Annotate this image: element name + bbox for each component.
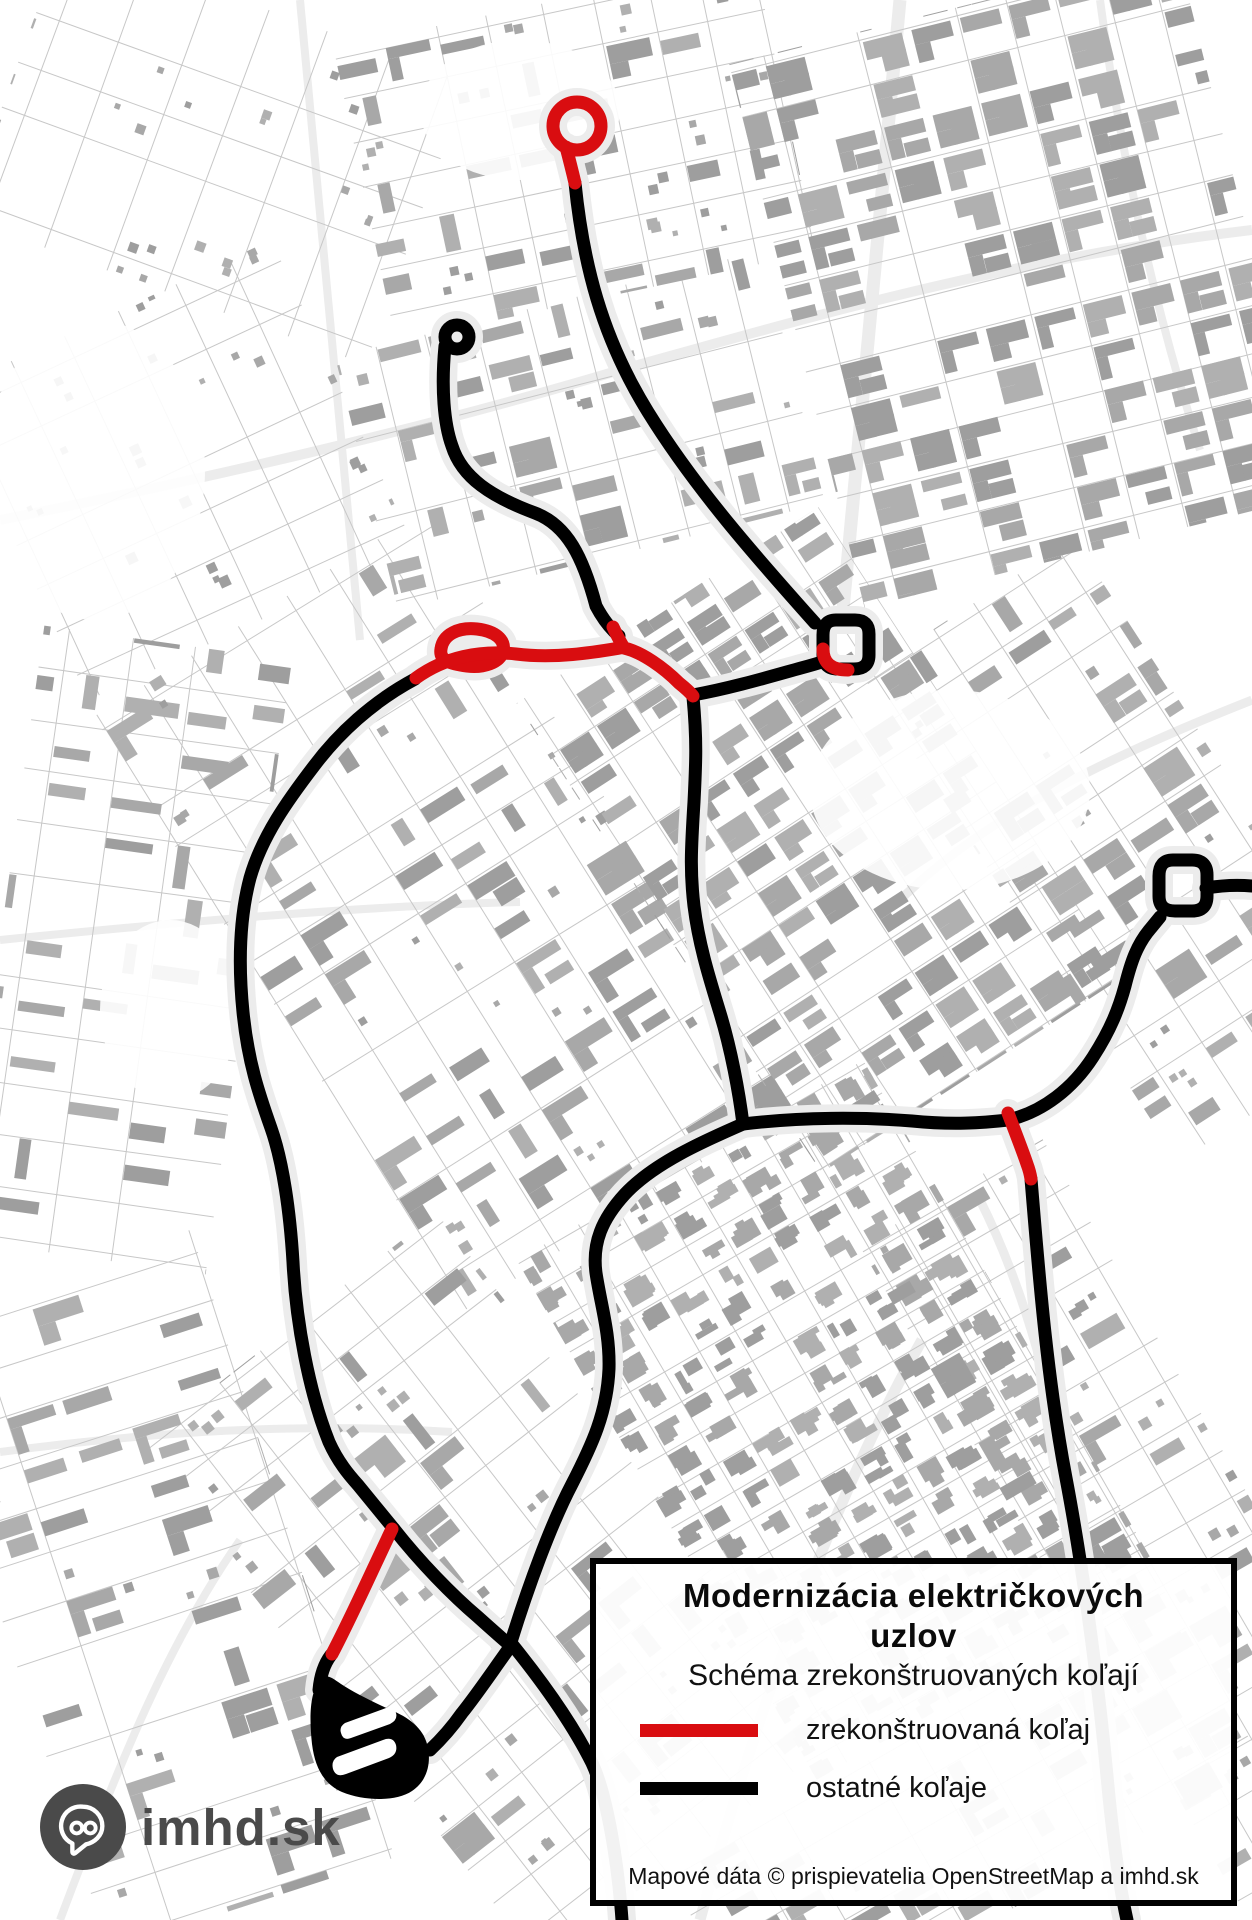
legend-title: Modernizácia električkových uzlov — [683, 1576, 1144, 1655]
track-right-edge-stub — [1206, 885, 1252, 888]
legend-title-line1: Modernizácia električkových — [683, 1577, 1144, 1614]
imhd-logo-text: imhd.sk — [141, 1798, 341, 1857]
map-canvas: Modernizácia električkových uzlov Schéma… — [0, 0, 1252, 1920]
legend-subtitle: Schéma zrekonštruovaných koľají — [688, 1659, 1139, 1693]
legend-item-other: ostatné koľaje — [606, 1759, 1221, 1817]
map-attribution: Mapové dáta © prispievatelia OpenStreetM… — [628, 1863, 1199, 1892]
reconstructed-track-swatch — [640, 1724, 758, 1737]
legend-item-label: ostatné koľaje — [806, 1772, 987, 1805]
legend-items: zrekonštruovaná koľaj ostatné koľaje — [606, 1701, 1221, 1817]
imhd-pin-icon — [40, 1784, 126, 1870]
legend-title-line2: uzlov — [870, 1617, 957, 1654]
legend-item-reconstructed: zrekonštruovaná koľaj — [606, 1701, 1221, 1759]
legend-item-label: zrekonštruovaná koľaj — [806, 1714, 1090, 1747]
legend-panel: Modernizácia električkových uzlov Schéma… — [590, 1558, 1237, 1906]
other-tracks-swatch — [640, 1782, 758, 1795]
imhd-logo: imhd.sk — [40, 1784, 341, 1870]
track-east-west-south-line — [743, 1118, 1008, 1124]
